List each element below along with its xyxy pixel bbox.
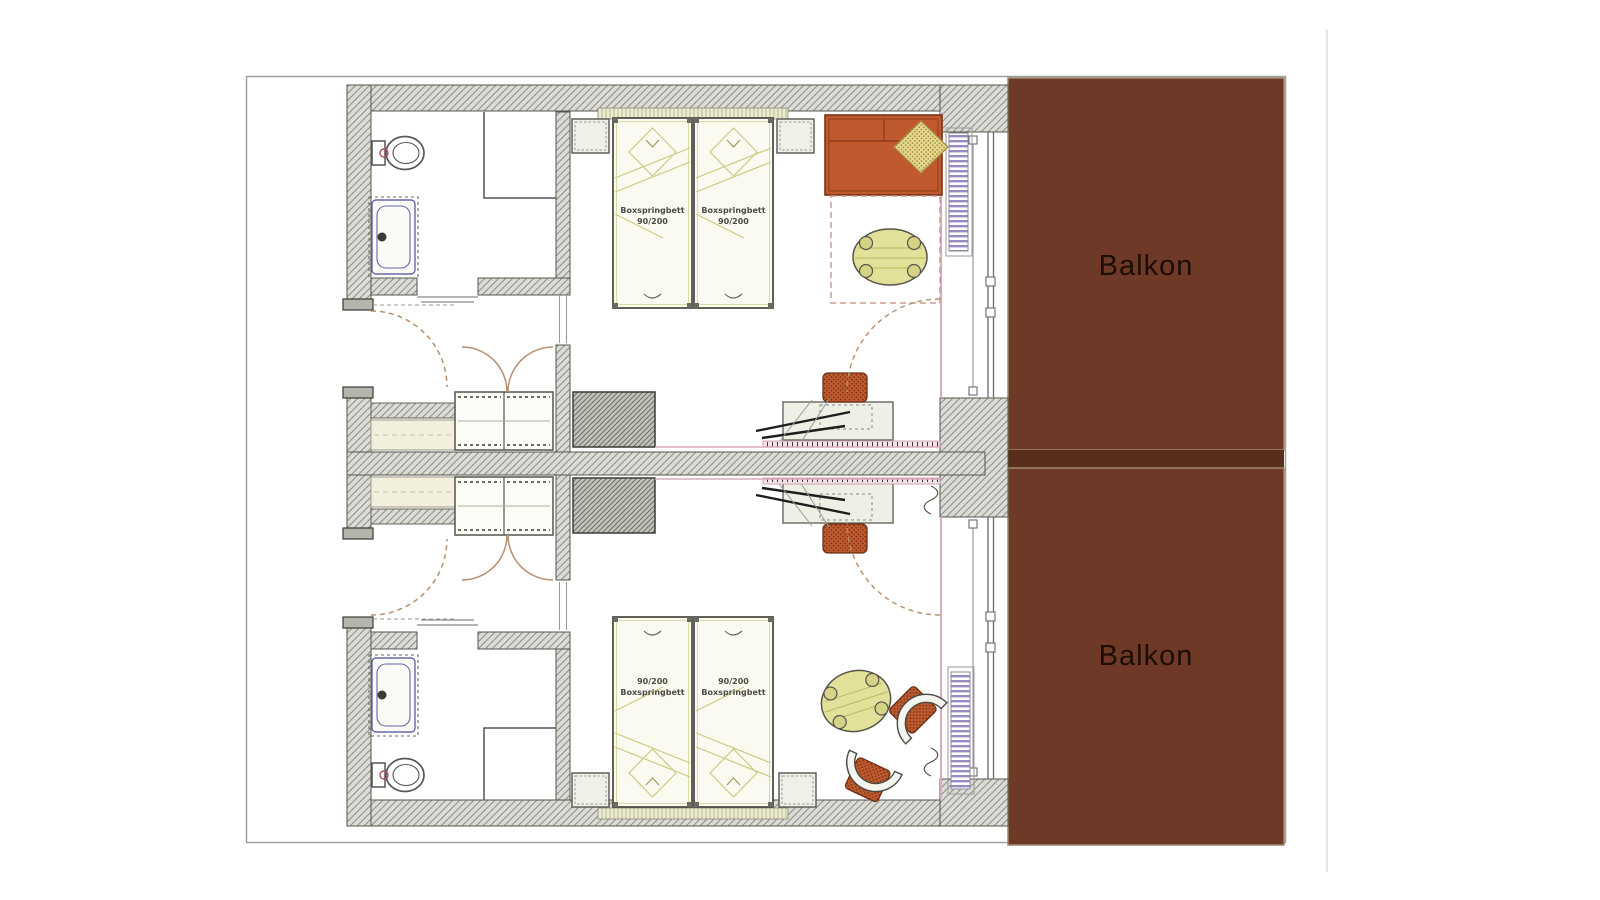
closet-top xyxy=(455,392,553,450)
bed-label-line: Boxspringbett xyxy=(613,688,692,699)
bed-label-bottom-left: 90/200 Boxspringbett xyxy=(613,677,692,699)
toilet-bottom xyxy=(372,759,424,792)
nightstand-bottom-right xyxy=(779,773,816,807)
desk-top xyxy=(756,373,893,447)
armchair-left xyxy=(834,750,902,807)
bathtub-bottom xyxy=(369,655,418,736)
bed-label-line: Boxspringbett xyxy=(694,688,773,699)
bathtub-top xyxy=(369,197,418,278)
armchair-right xyxy=(880,677,946,743)
table-top-room xyxy=(853,229,927,285)
floorplan-drawing xyxy=(0,0,1600,900)
bed-label-line: Boxspringbett xyxy=(613,206,692,217)
corridor-bottom xyxy=(371,477,567,630)
balcony-top-label: Balkon xyxy=(1008,250,1284,283)
bed-label-line: 90/200 xyxy=(613,677,692,688)
radiator-bottom xyxy=(948,667,974,794)
balcony-bottom-label: Balkon xyxy=(1008,640,1284,673)
sofa xyxy=(825,115,948,195)
bed-label-line: Boxspringbett xyxy=(694,206,773,217)
table-bottom-room xyxy=(813,662,898,741)
nightstand-bottom-left xyxy=(572,773,609,807)
floorplan-page: Balkon Balkon Boxspringbett 90/200 Boxsp… xyxy=(0,0,1600,900)
bed-label-line: 90/200 xyxy=(694,217,773,228)
bed-label-top-right: Boxspringbett 90/200 xyxy=(694,206,773,228)
bathroom-top xyxy=(369,112,556,302)
corridor-top xyxy=(371,296,567,450)
nightstand-top-right xyxy=(777,119,814,153)
bed-label-top-left: Boxspringbett 90/200 xyxy=(613,206,692,228)
headboard-bottom xyxy=(598,808,788,819)
bed-label-line: 90/200 xyxy=(694,677,773,688)
toilet-top xyxy=(372,137,424,170)
bed-bottom-right xyxy=(694,617,773,807)
bed-bottom-left xyxy=(613,617,692,807)
desk-bottom xyxy=(756,479,893,553)
closet-bottom xyxy=(455,477,553,535)
balcony-divider xyxy=(1008,450,1284,468)
bed-label-line: 90/200 xyxy=(613,217,692,228)
bed-label-bottom-right: 90/200 Boxspringbett xyxy=(694,677,773,699)
nightstand-top-left xyxy=(572,119,609,153)
radiator-top xyxy=(946,128,972,256)
